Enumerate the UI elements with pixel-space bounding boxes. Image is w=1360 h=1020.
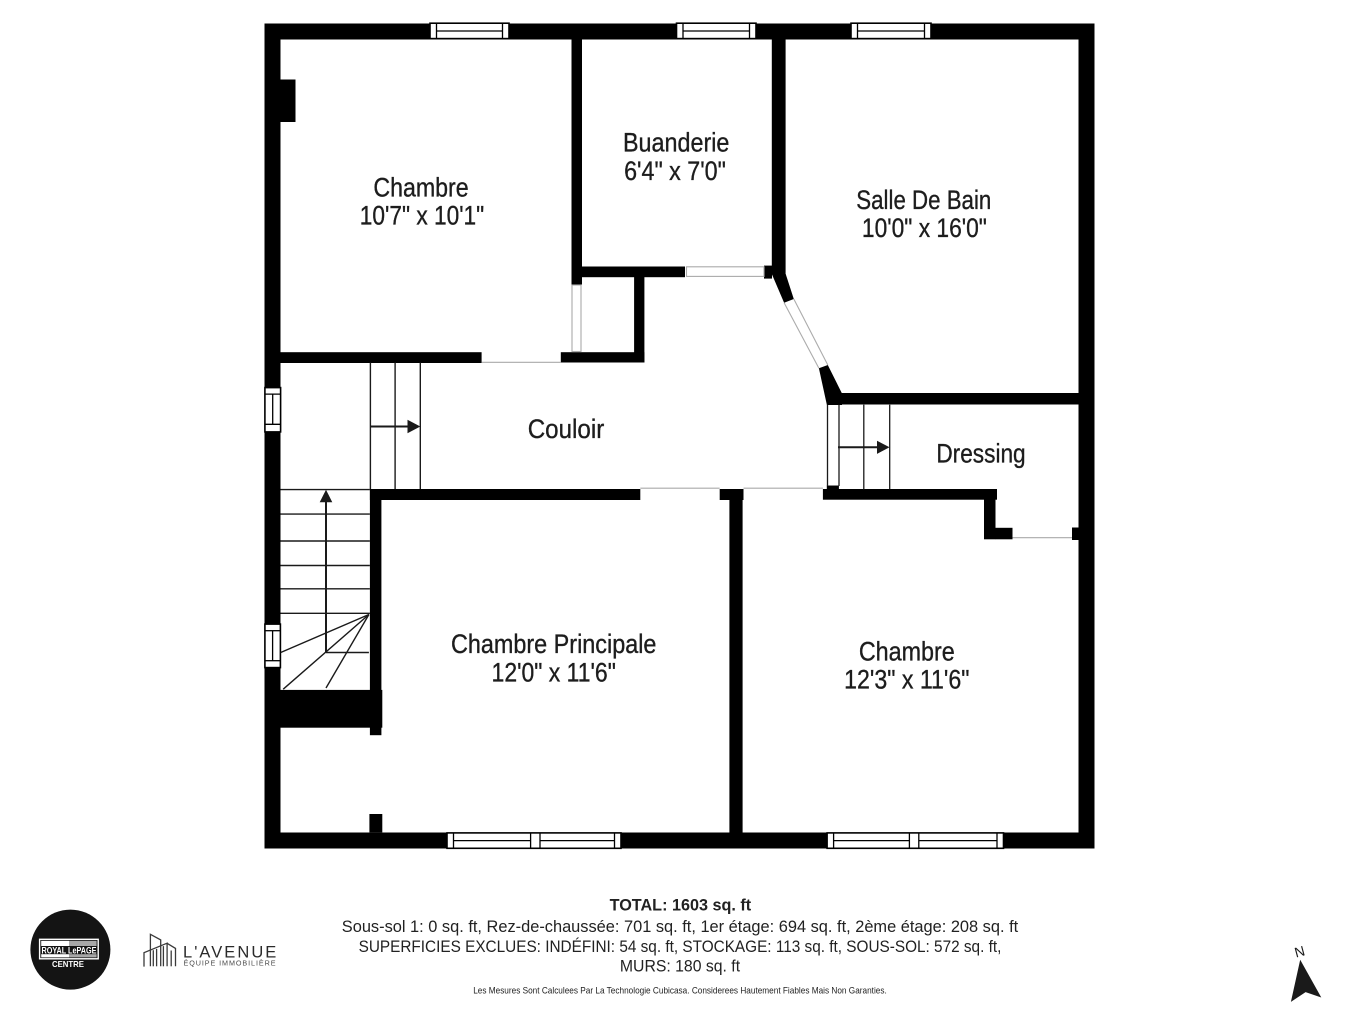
svg-text:10'0" x 16'0": 10'0" x 16'0" bbox=[862, 213, 987, 243]
svg-text:Les Mesures Sont Calculees Par: Les Mesures Sont Calculees Par La Techno… bbox=[473, 986, 887, 996]
svg-text:Buanderie: Buanderie bbox=[623, 128, 730, 158]
svg-text:ÉQUIPE IMMOBILIÈRE: ÉQUIPE IMMOBILIÈRE bbox=[184, 958, 276, 967]
svg-text:ROYAL LePAGE: ROYAL LePAGE bbox=[42, 946, 97, 956]
svg-text:Dressing: Dressing bbox=[936, 439, 1025, 469]
svg-text:Salle De Bain: Salle De Bain bbox=[856, 185, 991, 215]
svg-text:12'0" x 11'6": 12'0" x 11'6" bbox=[492, 658, 616, 688]
svg-text:MURS: 180 sq. ft: MURS: 180 sq. ft bbox=[620, 956, 741, 975]
svg-text:CENTRE: CENTRE bbox=[52, 960, 85, 969]
svg-text:Chambre Principale: Chambre Principale bbox=[451, 629, 657, 659]
svg-text:6'4" x 7'0": 6'4" x 7'0" bbox=[624, 156, 726, 186]
svg-text:Sous-sol 1: 0 sq. ft, Rez-de-c: Sous-sol 1: 0 sq. ft, Rez-de-chaussée: 7… bbox=[342, 917, 1019, 936]
svg-text:SUPERFICIES EXCLUES: INDÉFINI:: SUPERFICIES EXCLUES: INDÉFINI: 54 sq. ft… bbox=[359, 937, 1002, 956]
svg-text:Chambre: Chambre bbox=[859, 636, 955, 666]
svg-text:Chambre: Chambre bbox=[373, 173, 468, 203]
svg-text:TOTAL: 1603 sq. ft: TOTAL: 1603 sq. ft bbox=[610, 896, 752, 915]
svg-text:10'7" x 10'1": 10'7" x 10'1" bbox=[360, 200, 484, 230]
svg-text:Couloir: Couloir bbox=[528, 414, 605, 444]
svg-text:12'3" x 11'6": 12'3" x 11'6" bbox=[844, 665, 969, 695]
